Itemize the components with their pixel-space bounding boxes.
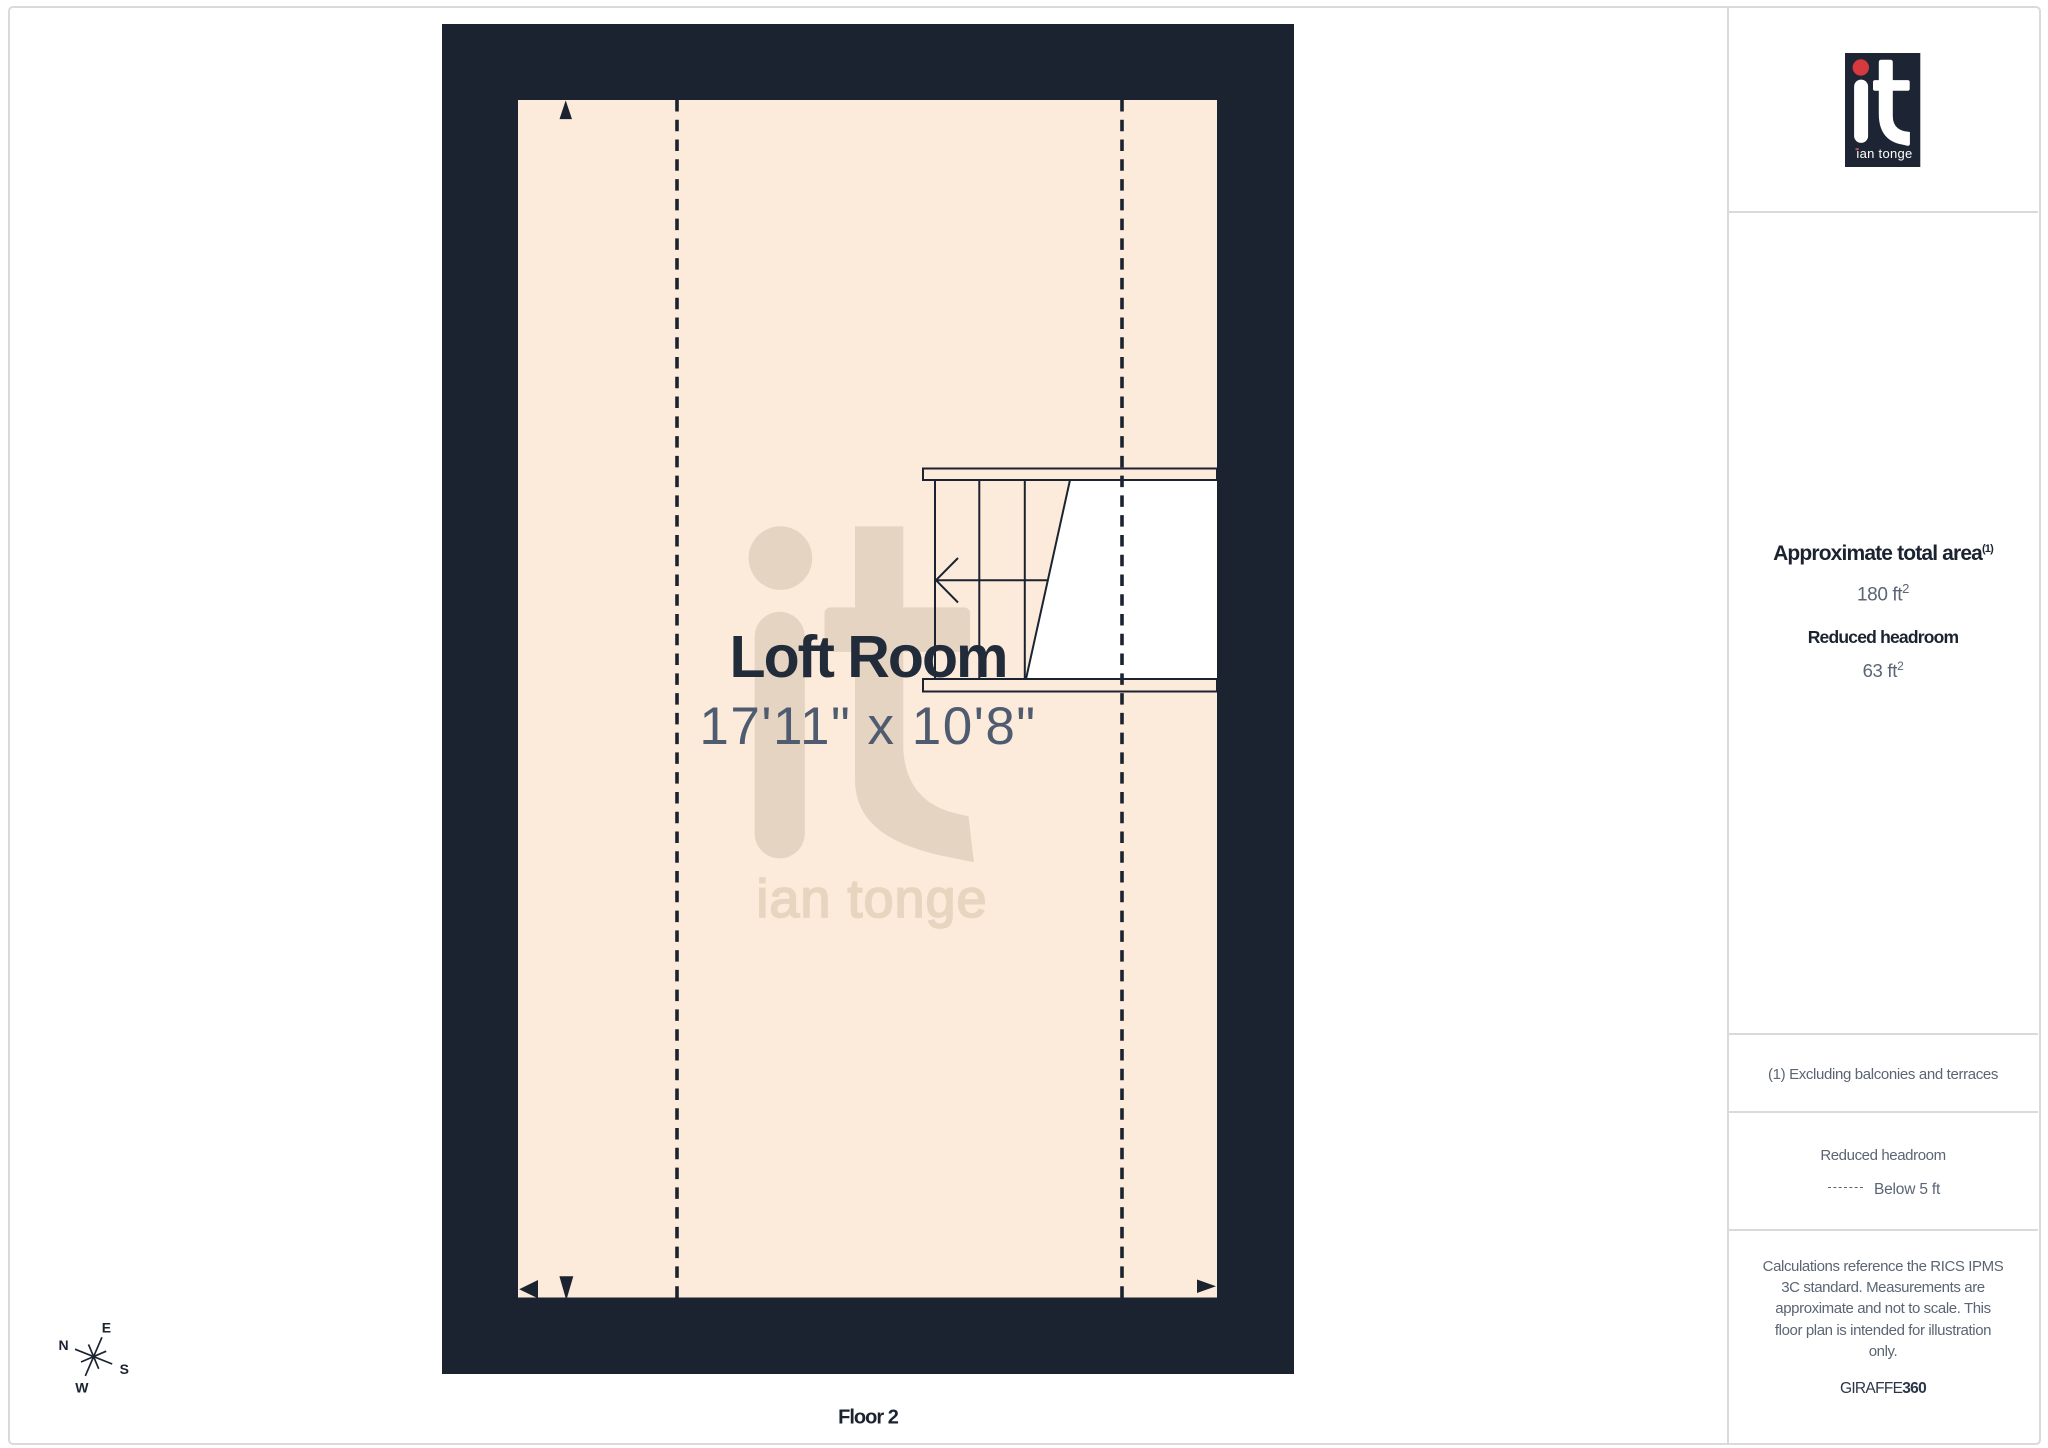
svg-text:E: E	[102, 1319, 111, 1335]
svg-text:Loft Room: Loft Room	[730, 624, 1007, 690]
svg-text:ian tonge: ian tonge	[756, 869, 987, 929]
svg-text:S: S	[120, 1361, 129, 1377]
svg-text:ian tonge: ian tonge	[1856, 146, 1912, 161]
svg-text:Floor 2: Floor 2	[838, 1407, 899, 1429]
svg-text:W: W	[75, 1379, 89, 1395]
svg-text:17'11" x 10'8": 17'11" x 10'8"	[699, 697, 1036, 756]
svg-text:N: N	[58, 1337, 68, 1353]
